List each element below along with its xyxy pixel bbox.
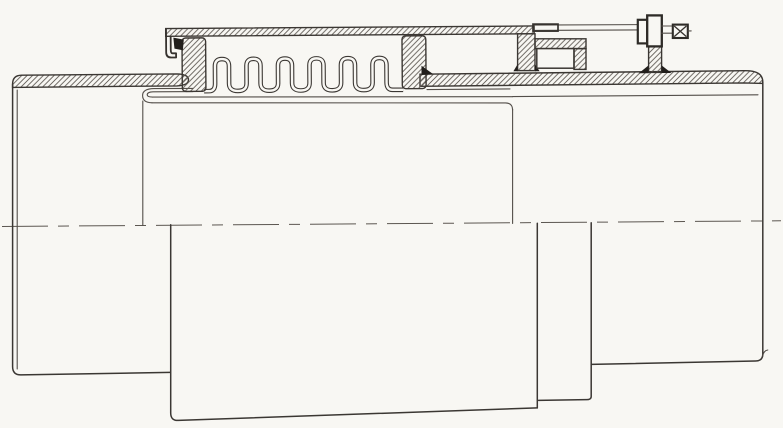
left-pipe-wall-section [13, 74, 189, 88]
right-collar [402, 36, 426, 89]
nut-plate-small [638, 20, 647, 44]
bell-bore-line [427, 89, 510, 90]
paper-background [0, 0, 783, 428]
bracket-cavity [537, 49, 574, 69]
scanned-drawing-page [0, 0, 783, 428]
left-collar [182, 38, 206, 92]
nut-plate-large [647, 15, 662, 46]
cover-lip-weld [173, 38, 183, 51]
bracket-lug [518, 34, 535, 71]
rod-support-post [649, 46, 662, 72]
limit-bracket [513, 34, 586, 71]
cover-plate-section [166, 26, 534, 36]
drawing-canvas [0, 0, 783, 428]
bracket-stop-block [574, 49, 586, 70]
bracket-top-plate [535, 39, 586, 49]
